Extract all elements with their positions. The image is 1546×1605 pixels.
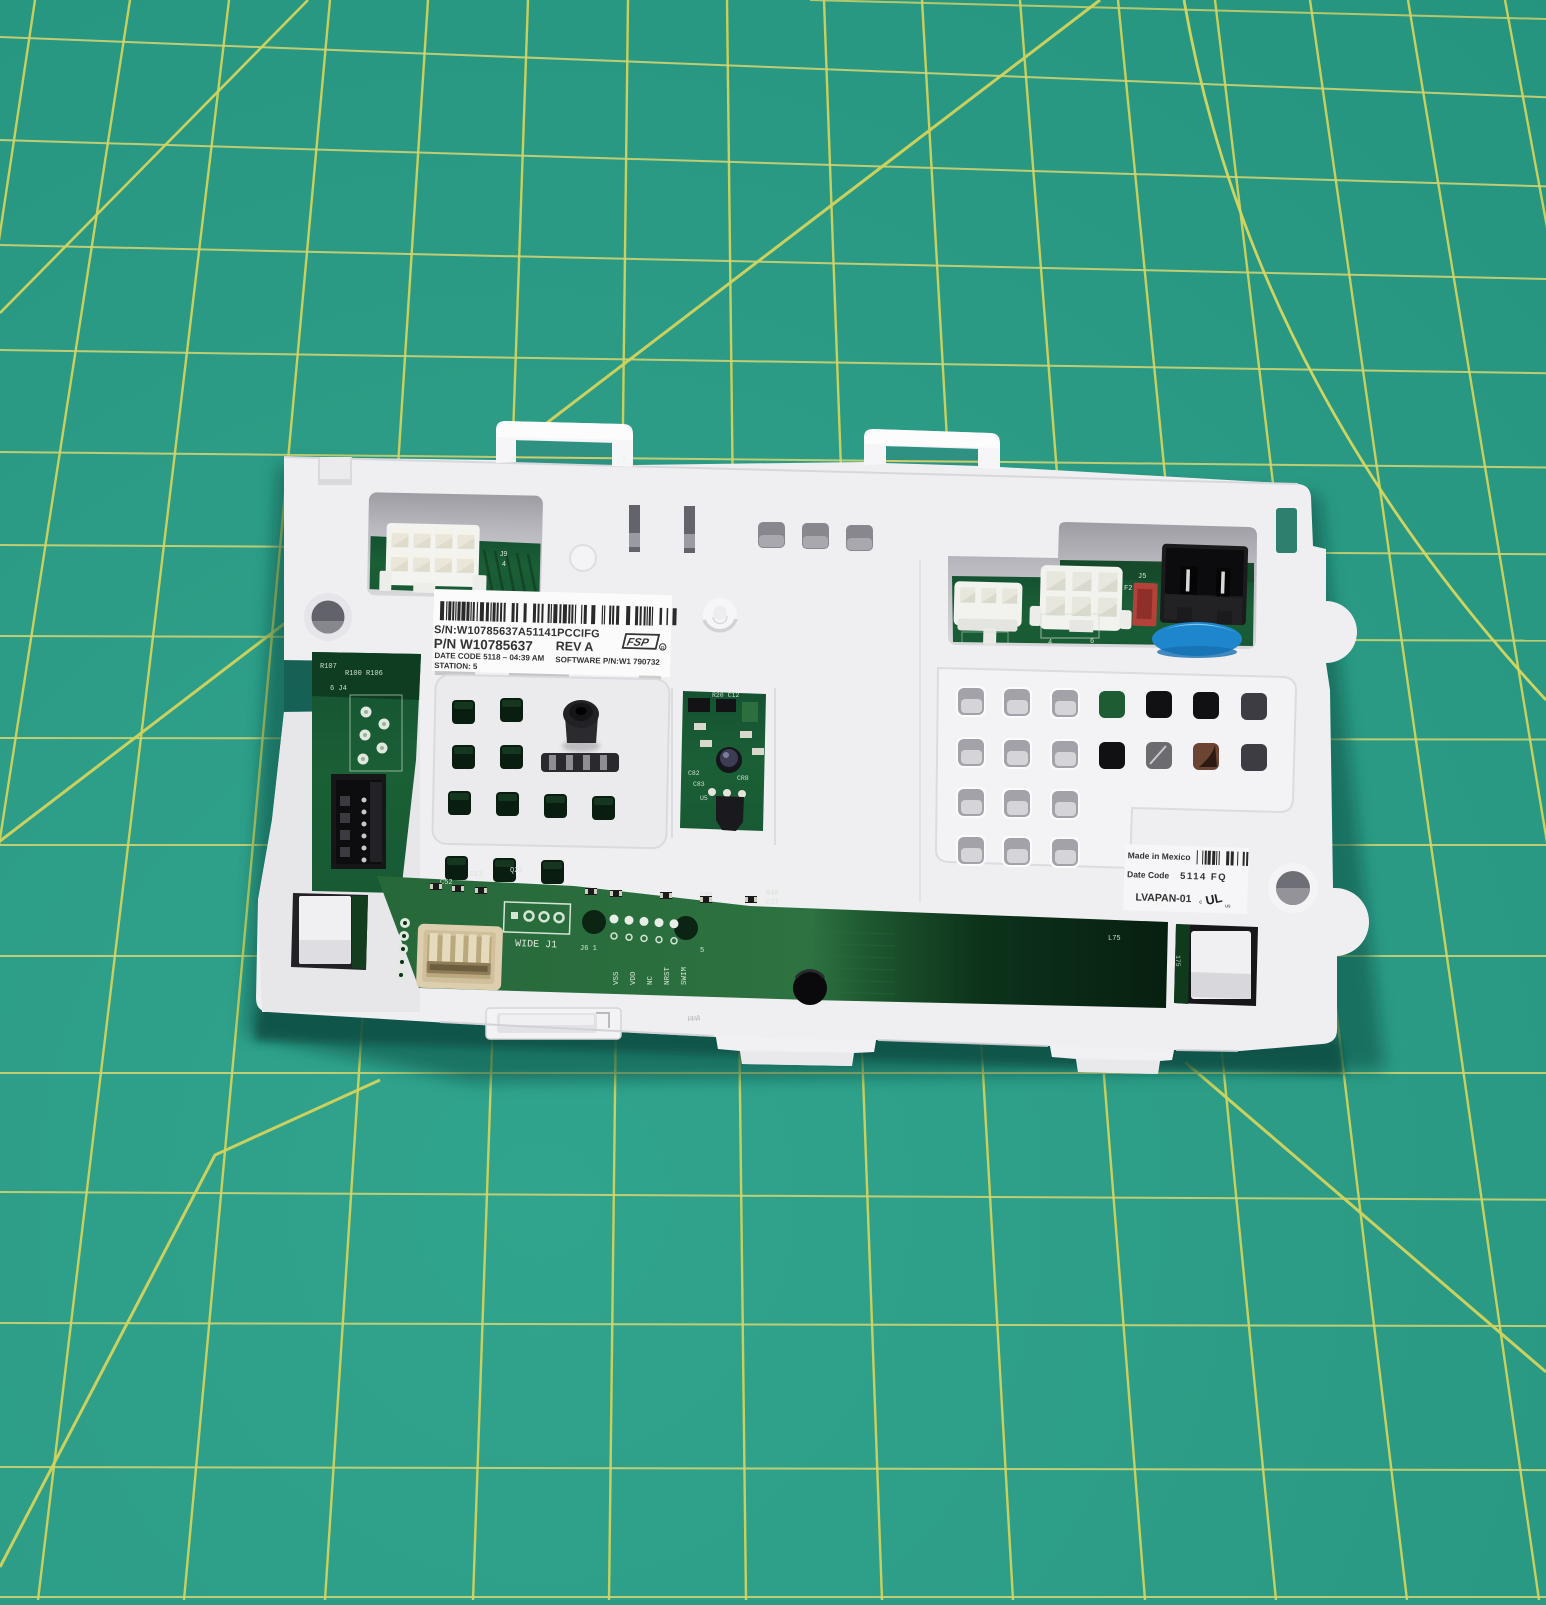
svg-text:R48: R48: [766, 890, 779, 898]
svg-text:C83: C83: [693, 781, 705, 788]
svg-text:175: 175: [1174, 955, 1181, 967]
svg-text:4: 4: [1048, 639, 1052, 647]
svg-text:LVAPAN-01: LVAPAN-01: [1135, 891, 1192, 905]
svg-text:4: 4: [502, 561, 506, 568]
svg-text:G13: G13: [470, 871, 483, 879]
svg-text:C82: C82: [688, 770, 700, 777]
svg-text:6 J4: 6 J4: [330, 685, 347, 693]
svg-text:U5: U5: [700, 795, 708, 802]
svg-text:μμд: μμд: [688, 1014, 701, 1022]
svg-text:SWIM: SWIM: [681, 966, 689, 985]
svg-text:5114 FQ: 5114 FQ: [1180, 871, 1227, 883]
svg-text:c: c: [1199, 899, 1202, 905]
svg-text:C27: C27: [766, 899, 779, 907]
svg-text:J9: J9: [500, 551, 508, 558]
svg-text:F2: F2: [1124, 585, 1132, 593]
svg-text:FSP: FSP: [626, 637, 651, 649]
svg-text:WIDE J1: WIDE J1: [515, 939, 557, 951]
svg-text:NRST: NRST: [664, 966, 672, 985]
svg-text:J6 1: J6 1: [580, 945, 597, 953]
svg-text:R20 C12: R20 C12: [712, 692, 739, 699]
svg-text:VSS: VSS: [613, 971, 621, 985]
svg-text:6: 6: [1090, 638, 1094, 646]
svg-text:Date Code: Date Code: [1127, 869, 1170, 880]
svg-text:Made in Mexico: Made in Mexico: [1128, 850, 1191, 862]
svg-text:VDD: VDD: [630, 971, 638, 985]
svg-text:R: R: [661, 646, 665, 652]
svg-text:CR8: CR8: [737, 775, 749, 782]
svg-text:NC: NC: [647, 975, 655, 985]
svg-text:STATION: 5: STATION: 5: [434, 661, 478, 671]
svg-text:us: us: [1225, 903, 1231, 909]
svg-text:Q22: Q22: [510, 867, 523, 875]
svg-text:5: 5: [700, 947, 704, 955]
svg-text:L75: L75: [1108, 935, 1121, 943]
svg-text:J5: J5: [1138, 573, 1146, 581]
svg-text:R107: R107: [320, 663, 337, 671]
svg-text:REV A: REV A: [556, 639, 594, 654]
svg-text:R100 R106: R100 R106: [345, 670, 383, 678]
